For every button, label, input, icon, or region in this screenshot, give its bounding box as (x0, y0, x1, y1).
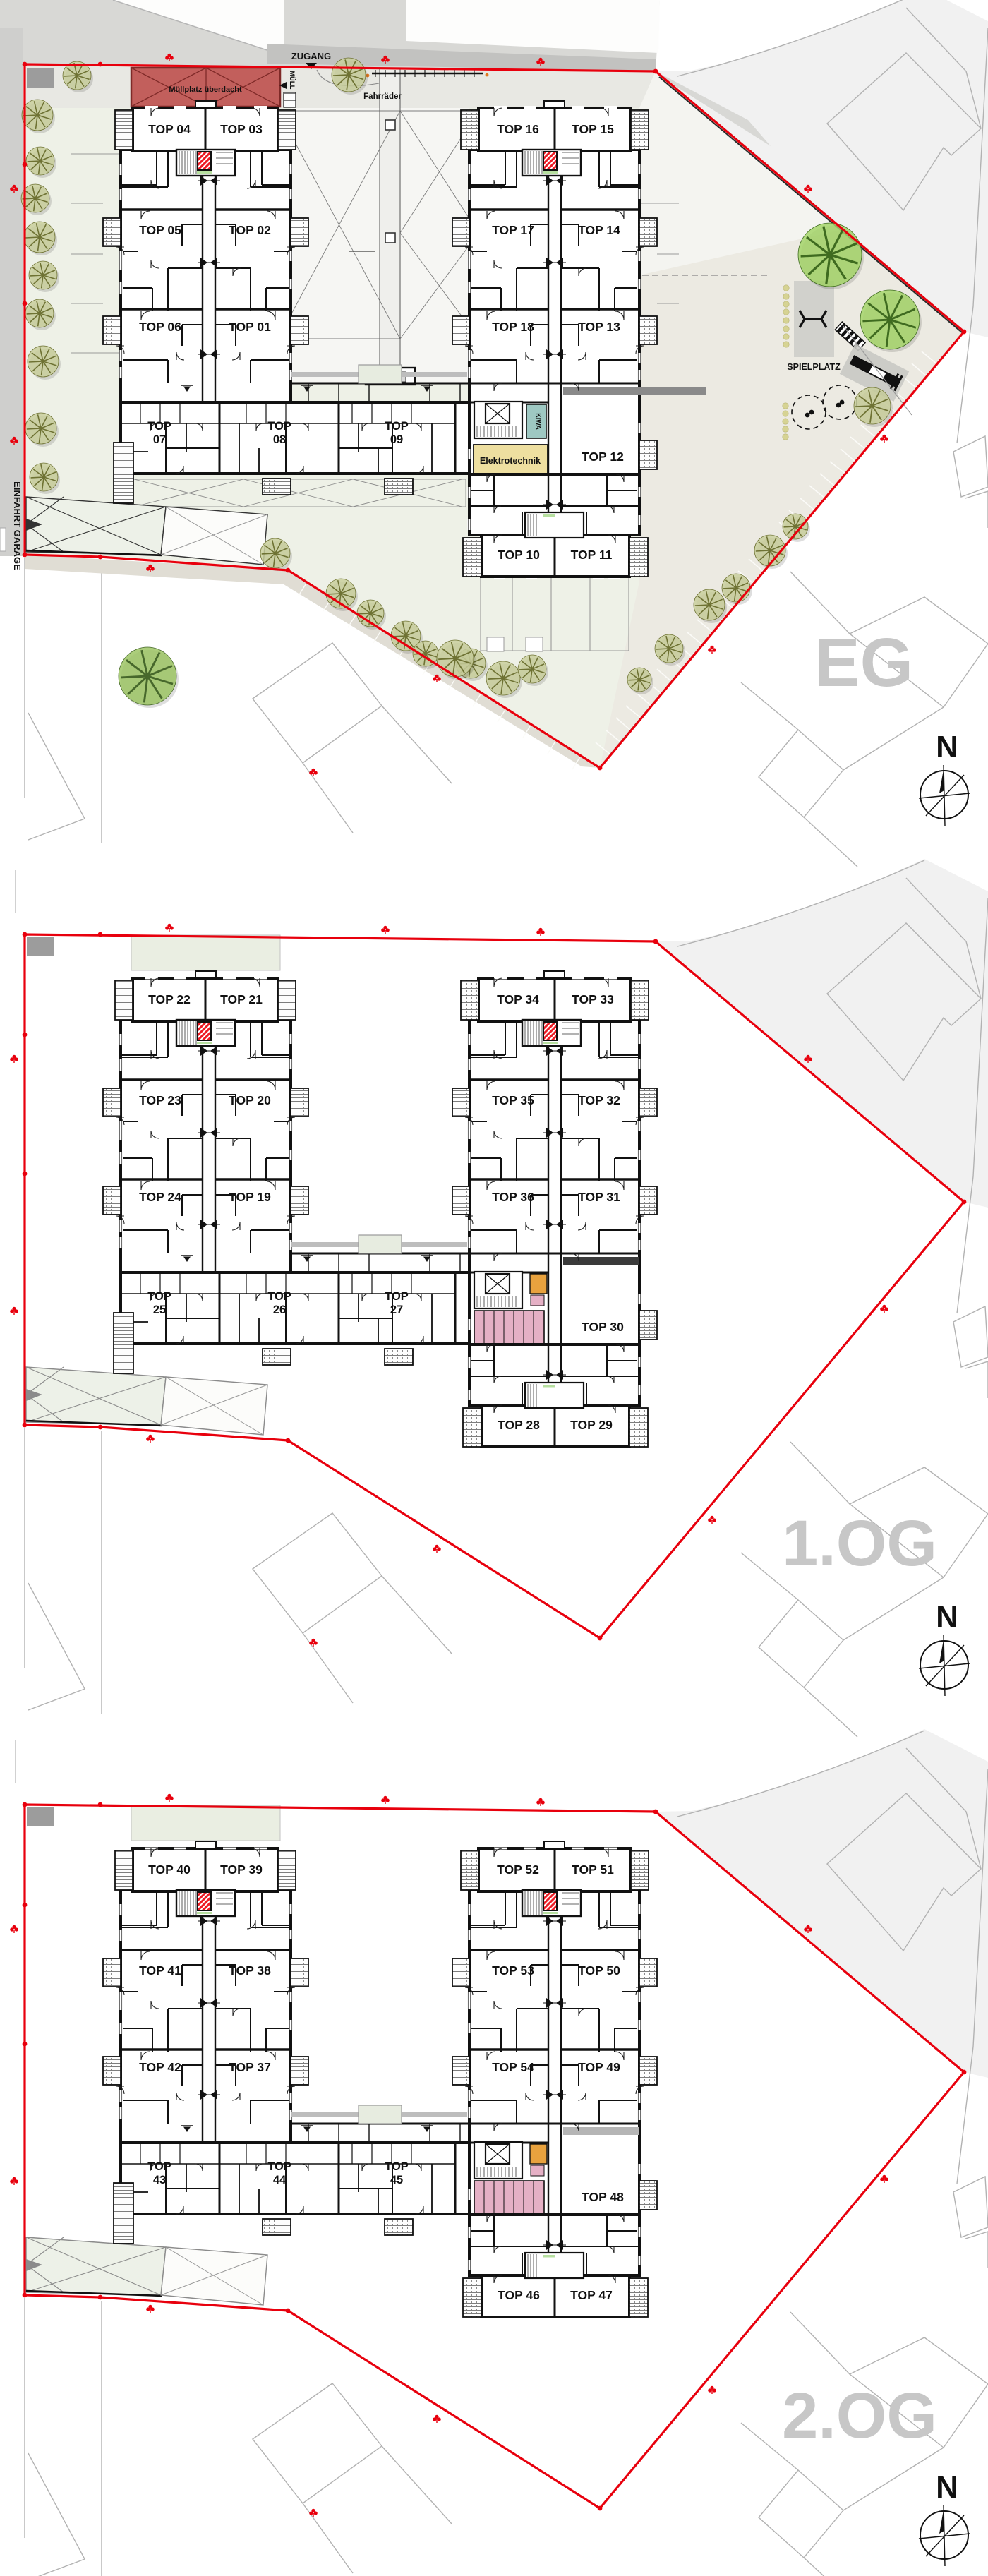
svg-text:N: N (936, 2470, 958, 2505)
svg-text:08: 08 (273, 433, 286, 446)
svg-text:TOP 14: TOP 14 (578, 223, 620, 237)
svg-text:TOP 24: TOP 24 (139, 1190, 181, 1204)
svg-text:TOP 50: TOP 50 (578, 1963, 620, 1978)
svg-text:TOP 34: TOP 34 (497, 992, 539, 1006)
svg-text:TOP 28: TOP 28 (498, 1418, 540, 1432)
svg-text:TOP: TOP (267, 2160, 291, 2173)
svg-text:MÜLL: MÜLL (288, 71, 296, 90)
svg-text:TOP 18: TOP 18 (492, 320, 534, 334)
svg-text:TOP 54: TOP 54 (492, 2060, 534, 2074)
svg-text:ZUGANG: ZUGANG (291, 51, 331, 61)
svg-text:TOP 42: TOP 42 (139, 2060, 181, 2074)
svg-text:TOP 36: TOP 36 (492, 1190, 534, 1204)
svg-text:EG: EG (814, 624, 913, 701)
svg-text:43: 43 (153, 2174, 166, 2186)
svg-text:TOP 15: TOP 15 (572, 122, 614, 136)
svg-text:TOP 52: TOP 52 (497, 1862, 539, 1877)
svg-text:TOP 29: TOP 29 (570, 1418, 613, 1432)
svg-text:TOP 39: TOP 39 (220, 1862, 263, 1877)
svg-text:N: N (936, 730, 958, 764)
svg-text:TOP 47: TOP 47 (570, 2288, 613, 2302)
svg-text:TOP 13: TOP 13 (578, 320, 620, 334)
svg-text:TOP 02: TOP 02 (229, 223, 271, 237)
svg-text:TOP 32: TOP 32 (578, 1093, 620, 1107)
svg-text:TOP 11: TOP 11 (571, 548, 613, 562)
svg-text:TOP: TOP (267, 420, 291, 433)
svg-text:TOP 41: TOP 41 (139, 1963, 181, 1978)
svg-text:Müllplatz überdacht: Müllplatz überdacht (169, 85, 242, 94)
svg-text:26: 26 (273, 1304, 286, 1316)
svg-text:TOP 05: TOP 05 (139, 223, 181, 237)
svg-text:TOP 12: TOP 12 (582, 450, 624, 464)
svg-text:TOP 37: TOP 37 (229, 2060, 271, 2074)
svg-text:TOP: TOP (147, 420, 171, 433)
svg-text:TOP 40: TOP 40 (148, 1862, 191, 1877)
svg-text:N: N (936, 1600, 958, 1635)
svg-text:TOP: TOP (385, 2160, 409, 2173)
svg-text:TOP: TOP (147, 1290, 171, 1303)
svg-text:TOP 22: TOP 22 (148, 992, 191, 1006)
svg-text:TOP: TOP (385, 1290, 409, 1303)
svg-text:TOP 33: TOP 33 (572, 992, 614, 1006)
svg-text:SPIELPLATZ: SPIELPLATZ (787, 362, 841, 372)
svg-text:Elektrotechnik: Elektrotechnik (480, 456, 541, 466)
svg-text:TOP 23: TOP 23 (139, 1093, 181, 1107)
svg-text:44: 44 (273, 2174, 287, 2186)
svg-text:TOP 51: TOP 51 (572, 1862, 614, 1877)
svg-text:TOP 06: TOP 06 (139, 320, 181, 334)
svg-text:TOP 21: TOP 21 (220, 992, 263, 1006)
svg-text:TOP 48: TOP 48 (582, 2190, 624, 2204)
svg-text:TOP 30: TOP 30 (582, 1320, 624, 1334)
svg-text:KIWA: KIWA (535, 413, 542, 430)
svg-text:TOP 20: TOP 20 (229, 1093, 271, 1107)
svg-text:1.OG: 1.OG (782, 1507, 937, 1579)
svg-text:TOP 49: TOP 49 (578, 2060, 620, 2074)
svg-text:EINFAHRT GARAGE: EINFAHRT GARAGE (12, 481, 23, 570)
svg-text:TOP 01: TOP 01 (229, 320, 271, 334)
svg-text:TOP 35: TOP 35 (492, 1093, 534, 1107)
svg-text:07: 07 (153, 433, 166, 446)
svg-text:45: 45 (390, 2174, 403, 2186)
svg-text:TOP 46: TOP 46 (498, 2288, 540, 2302)
svg-text:09: 09 (390, 433, 403, 446)
svg-text:TOP 38: TOP 38 (229, 1963, 271, 1978)
svg-text:TOP 19: TOP 19 (229, 1190, 271, 1204)
svg-text:2.OG: 2.OG (782, 2380, 937, 2452)
svg-text:TOP: TOP (267, 1290, 291, 1303)
svg-text:TOP 04: TOP 04 (148, 122, 191, 136)
svg-text:TOP 16: TOP 16 (497, 122, 539, 136)
svg-text:27: 27 (390, 1304, 403, 1316)
svg-text:TOP: TOP (385, 420, 409, 433)
svg-text:TOP: TOP (147, 2160, 171, 2173)
svg-text:TOP 53: TOP 53 (492, 1963, 534, 1978)
svg-text:TOP 31: TOP 31 (578, 1190, 620, 1204)
svg-text:TOP 10: TOP 10 (498, 548, 540, 562)
svg-text:Fahrräder: Fahrräder (363, 92, 402, 101)
svg-text:25: 25 (153, 1304, 166, 1316)
svg-text:TOP 03: TOP 03 (220, 122, 263, 136)
svg-text:TOP 17: TOP 17 (492, 223, 534, 237)
